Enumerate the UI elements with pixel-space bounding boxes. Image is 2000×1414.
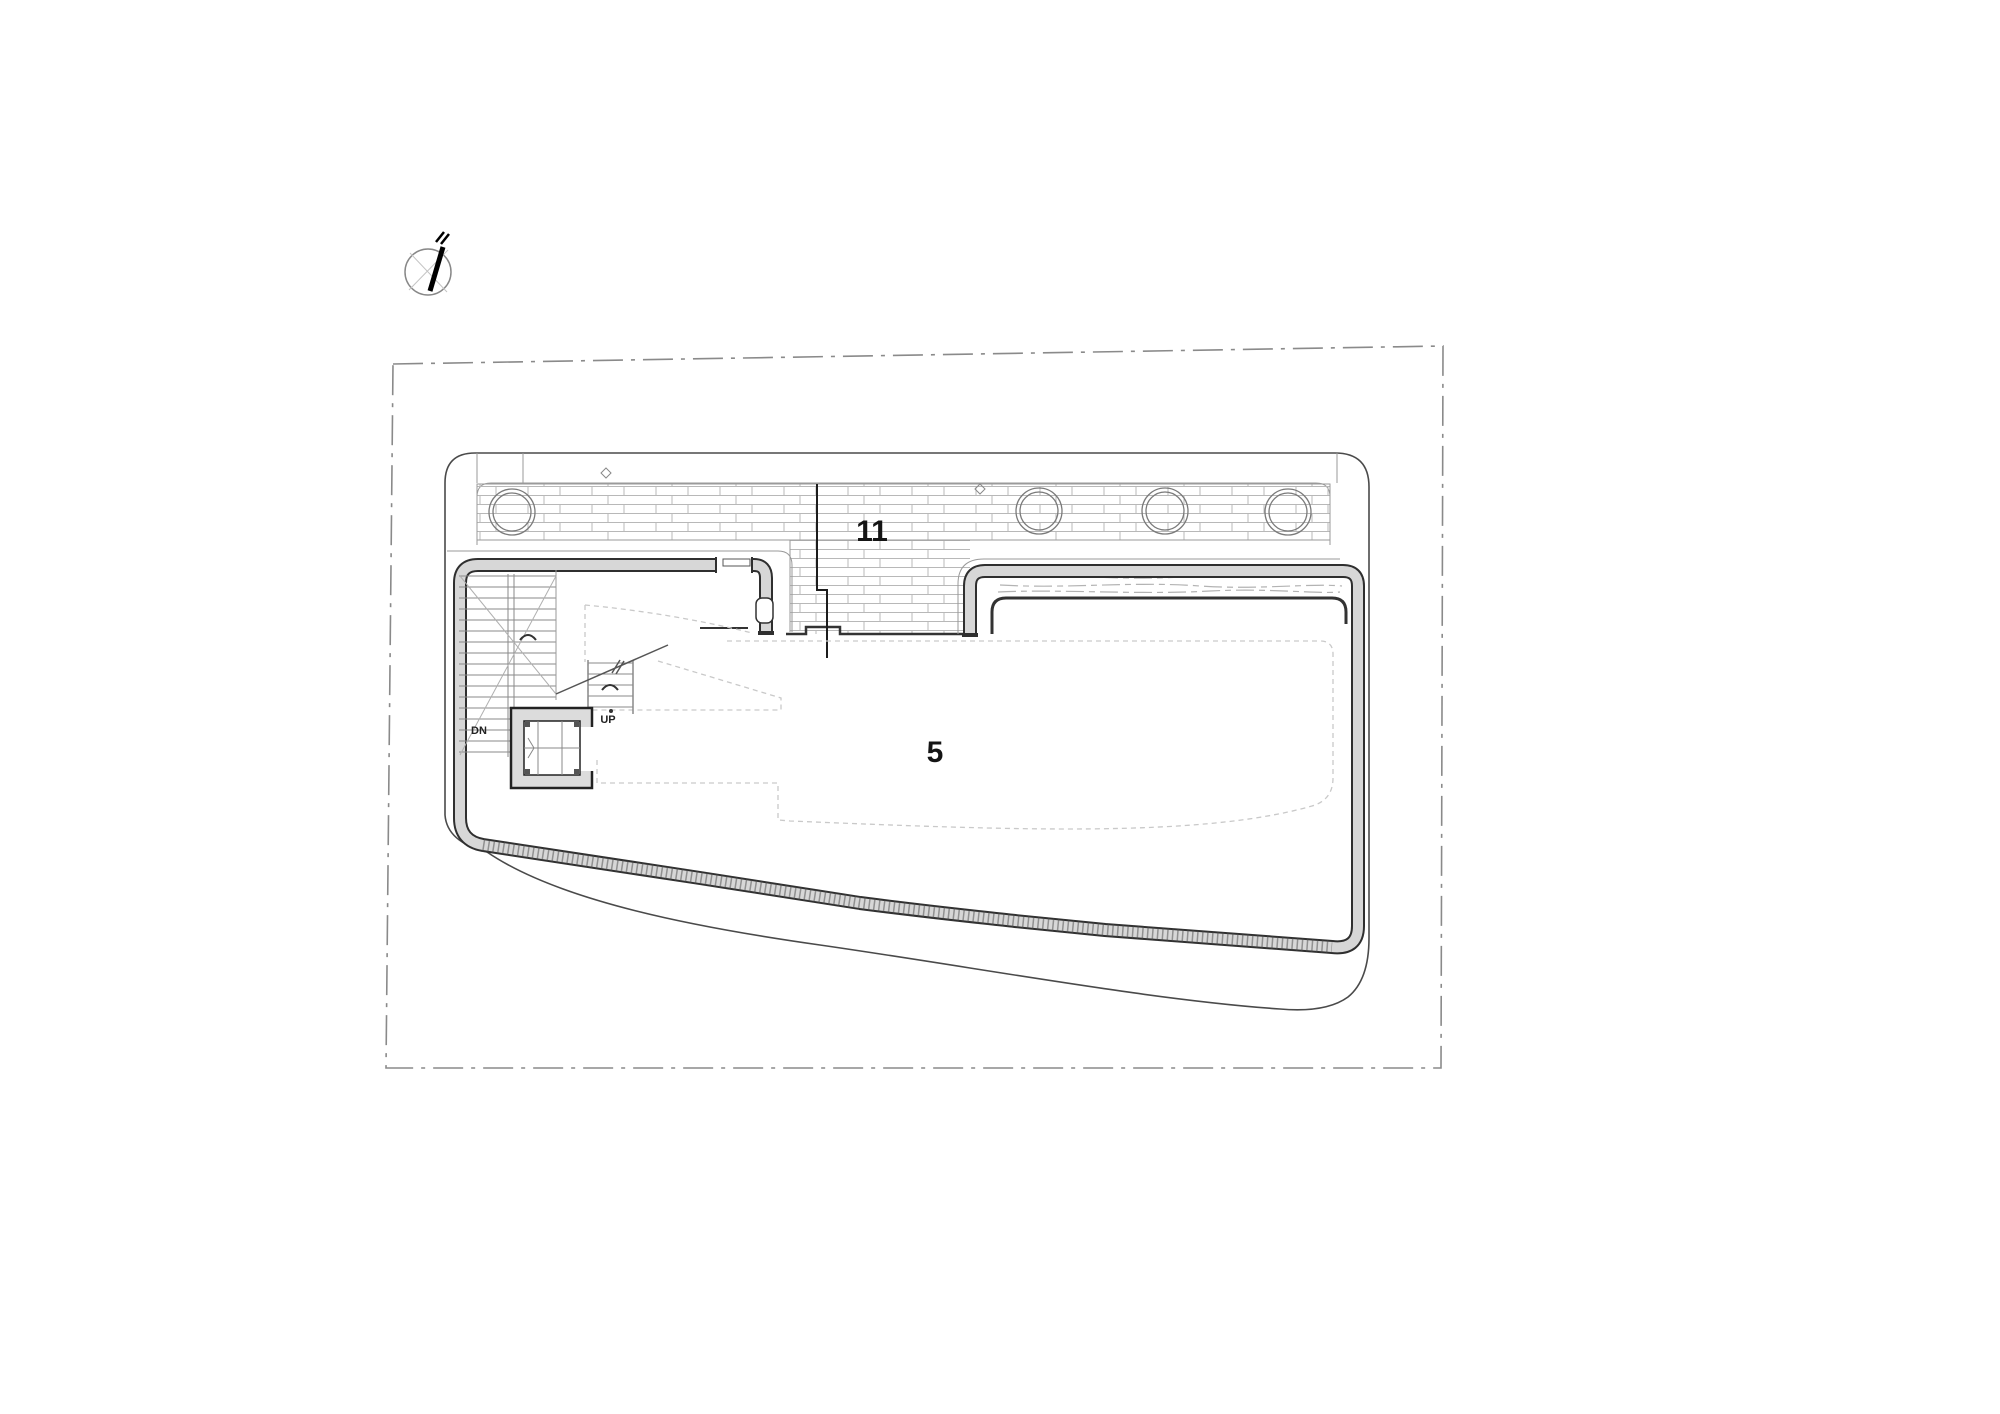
wall-north-terrace: [970, 571, 1358, 634]
planter-strip: [998, 576, 1342, 593]
room-11-label: 11: [856, 515, 888, 548]
middle-stair: [556, 645, 668, 714]
stair-start-dot: [609, 709, 613, 713]
floor-plan-canvas: 11 5 UP DN: [0, 0, 2000, 1414]
north-tick-marks: [436, 232, 449, 244]
elevator: [511, 708, 595, 788]
north-arrow: [405, 232, 451, 295]
interior-dashed-outline: [585, 605, 1333, 829]
floor-plan-drawing: 11 5 UP DN: [0, 0, 2000, 1414]
up-label: UP: [600, 714, 615, 726]
planter-inner-edge: [992, 598, 1346, 634]
dn-label: DN: [471, 725, 487, 737]
door-threshold: [723, 559, 750, 566]
room-5-label: 5: [927, 736, 944, 769]
handrail-symbol: [602, 685, 618, 690]
stair-cut-line: [556, 645, 668, 694]
wall-window-glyph: [756, 598, 773, 623]
compass-needle: [430, 247, 443, 291]
